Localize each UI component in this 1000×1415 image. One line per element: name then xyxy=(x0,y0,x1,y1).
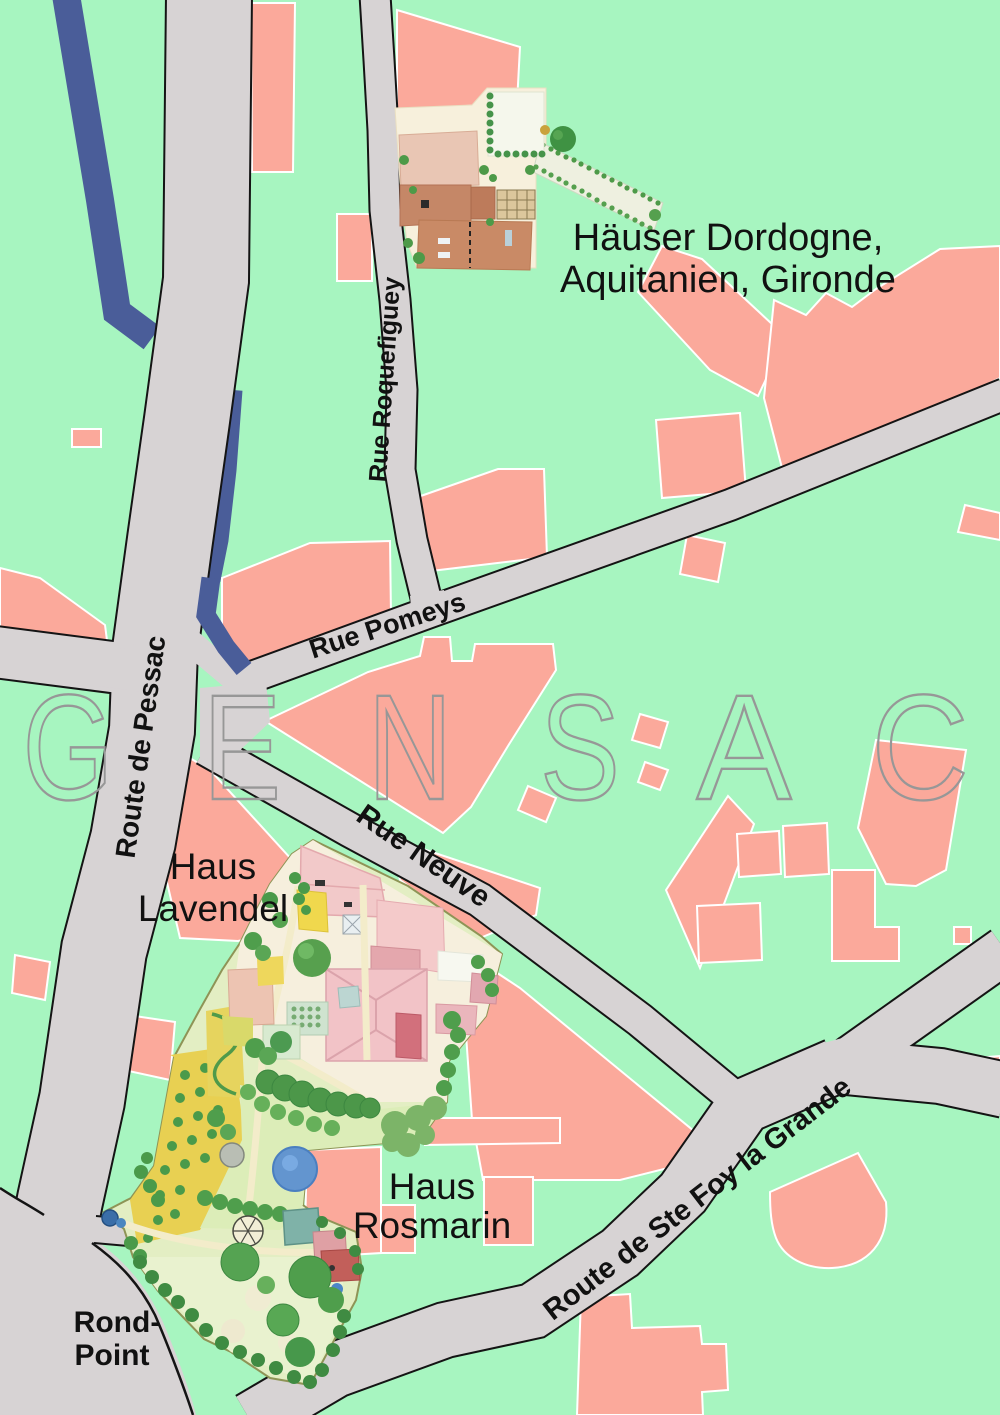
svg-text:E: E xyxy=(203,663,281,831)
svg-text:S: S xyxy=(540,663,620,831)
svg-text:Point: Point xyxy=(75,1339,150,1372)
svg-text:Haus: Haus xyxy=(389,1166,475,1207)
svg-text:C: C xyxy=(871,664,968,831)
svg-text:Häuser Dordogne,: Häuser Dordogne, xyxy=(573,217,884,259)
svg-text:G: G xyxy=(22,663,113,831)
svg-text:Rosmarin: Rosmarin xyxy=(353,1205,511,1246)
svg-text:Haus: Haus xyxy=(170,846,256,887)
svg-text:Rond-: Rond- xyxy=(74,1306,161,1339)
svg-text:Lavendel: Lavendel xyxy=(138,888,288,929)
svg-text:A: A xyxy=(696,665,791,832)
svg-text:Aquitanien, Gironde: Aquitanien, Gironde xyxy=(560,259,896,301)
